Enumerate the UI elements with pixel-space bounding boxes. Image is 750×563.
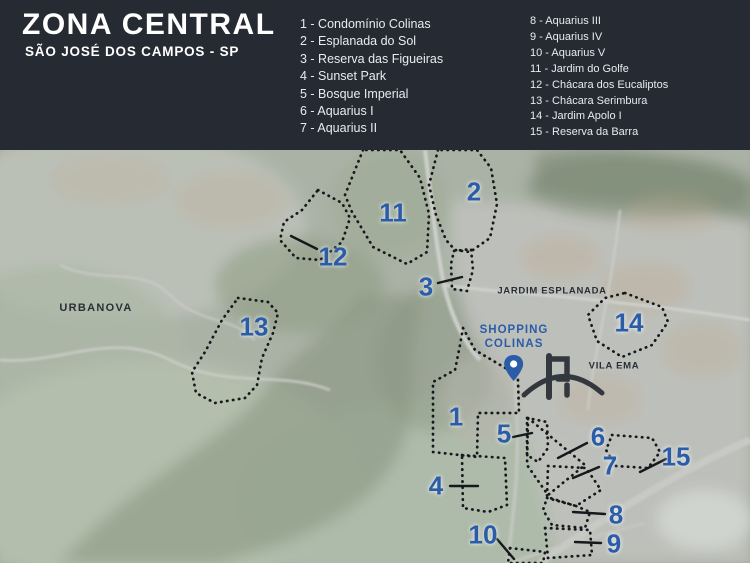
region-number-6: 6 [591, 422, 605, 453]
legend-item-4: 4 - Sunset Park [300, 68, 443, 85]
region-number-8: 8 [609, 500, 623, 531]
legend-item-13: 13 - Chácara Serimbura [530, 94, 668, 110]
legend-item-15: 15 - Reserva da Barra [530, 125, 668, 141]
poi-label-line1: SHOPPING [480, 323, 549, 337]
region-number-7: 7 [603, 451, 617, 482]
area-label-urbanova: URBANOVA [59, 302, 132, 314]
region-number-12: 12 [319, 242, 348, 273]
header-bar: ZONA CENTRAL SÃO JOSÉ DOS CAMPOS - SP 1 … [0, 0, 750, 150]
legend-column-2: 8 - Aquarius III9 - Aquarius IV10 - Aqua… [530, 14, 668, 141]
region-number-10: 10 [469, 520, 498, 551]
callout-line-9 [575, 542, 601, 543]
map-pin-icon [503, 354, 525, 382]
shopping-colinas-poi: SHOPPING COLINAS [480, 323, 549, 387]
legend-item-9: 9 - Aquarius IV [530, 30, 668, 46]
legend-item-2: 2 - Esplanada do Sol [300, 33, 443, 50]
region-number-1: 1 [449, 402, 463, 433]
legend-item-12: 12 - Chácara dos Eucaliptos [530, 78, 668, 94]
legend-item-8: 8 - Aquarius III [530, 14, 668, 30]
page-subtitle: SÃO JOSÉ DOS CAMPOS - SP [25, 44, 239, 59]
legend-item-6: 6 - Aquarius I [300, 103, 443, 120]
legend-item-3: 3 - Reserva das Figueiras [300, 51, 443, 68]
poi-label-line2: COLINAS [480, 337, 549, 351]
legend-item-5: 5 - Bosque Imperial [300, 86, 443, 103]
legend-item-7: 7 - Aquarius II [300, 120, 443, 137]
region-number-13: 13 [240, 312, 269, 343]
legend-item-14: 14 - Jardim Apolo I [530, 109, 668, 125]
area-label-jardim-esplanada: JARDIM ESPLANADA [497, 286, 606, 297]
region-number-3: 3 [419, 272, 433, 303]
legend-item-11: 11 - Jardim do Golfe [530, 62, 668, 78]
map-tint-overlay [0, 145, 750, 563]
legend-item-10: 10 - Aquarius V [530, 46, 668, 62]
legend-item-1: 1 - Condomínio Colinas [300, 16, 443, 33]
region-number-11: 11 [379, 198, 407, 229]
region-number-5: 5 [497, 419, 511, 450]
infographic-canvas: ZONA CENTRAL SÃO JOSÉ DOS CAMPOS - SP 1 … [0, 0, 750, 563]
page-title: ZONA CENTRAL [22, 8, 276, 42]
region-number-14: 14 [615, 308, 644, 339]
satellite-map: URBANOVAJARDIM ESPLANADAVILA EMA SHOPPIN… [0, 145, 750, 563]
legend-column-1: 1 - Condomínio Colinas2 - Esplanada do S… [300, 16, 443, 138]
region-number-9: 9 [607, 529, 621, 560]
map-graphic [0, 145, 750, 563]
region-number-15: 15 [662, 442, 691, 473]
region-number-4: 4 [429, 471, 443, 502]
region-number-2: 2 [467, 177, 481, 208]
